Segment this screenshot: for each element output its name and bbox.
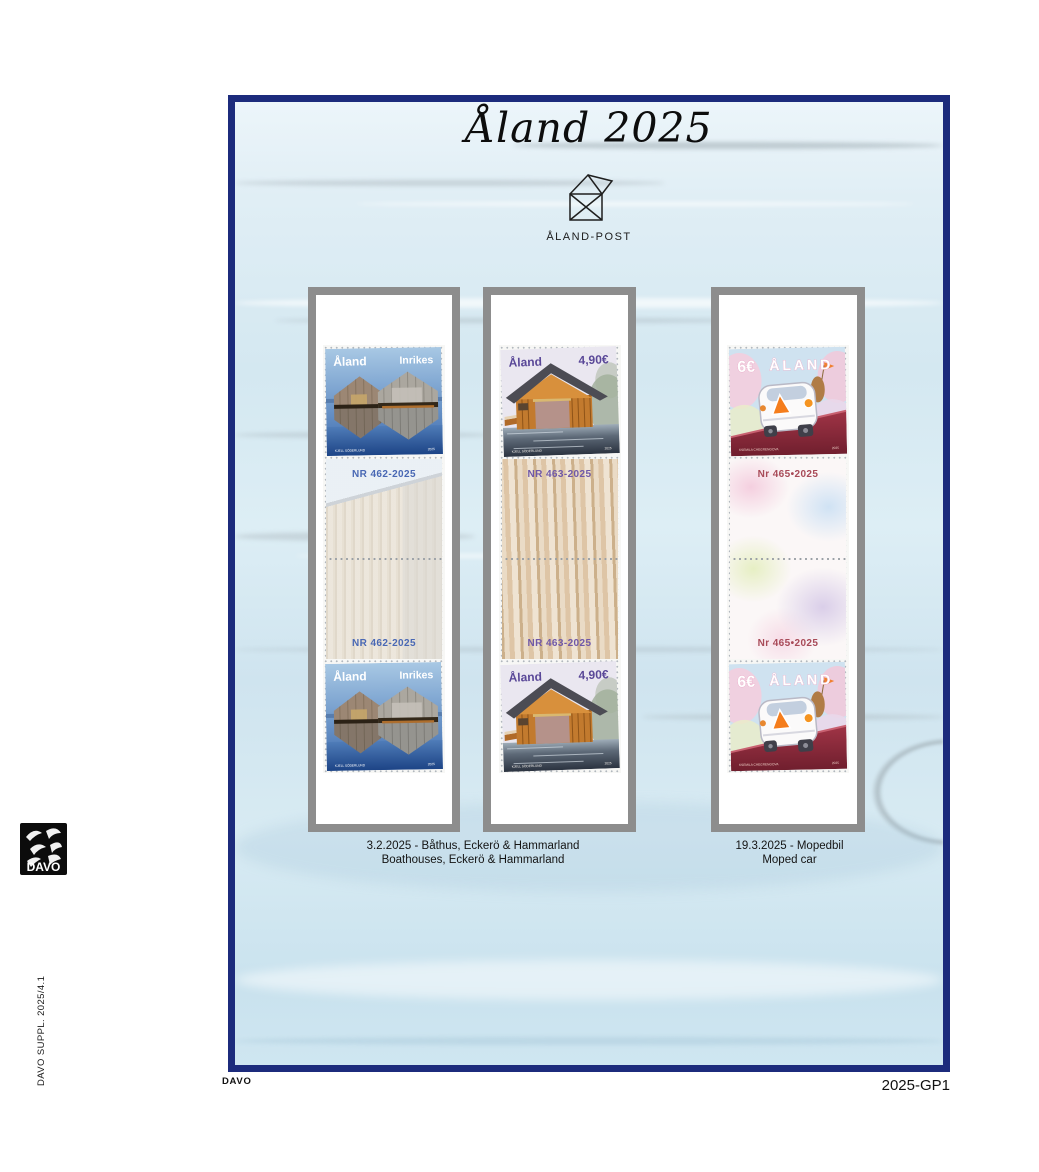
stamp-490-bottom: Åland 4,90€ KJELL SÖDERLUND 2025: [500, 661, 620, 772]
album-page: DAVO DAVO SUPPL. 2025/4.1 Åland 2025: [0, 0, 1039, 1172]
gutter-number-bottom: Nr 465•2025: [730, 638, 846, 649]
stamp-stack-465: 6€ ÅLAND KSEMILA CHEGRENGOVA 2025 Nr 465…: [727, 345, 849, 773]
caption-boathouses: 3.2.2025 - Båthus, Eckerö & Hammarland B…: [312, 839, 634, 867]
stamp-stack-462: Åland Inrikes KJELL SÖDERLUND 2025 NR 46…: [323, 345, 445, 773]
page-code: 2025-GP1: [830, 1077, 950, 1094]
stamp-year: 2025: [832, 446, 839, 450]
aland-post-wordmark: ÅLAND-POST: [228, 231, 950, 243]
aland-post-logo: ÅLAND-POST: [228, 168, 950, 243]
stamp-year: 2025: [604, 446, 611, 450]
caption-moped-car: 19.3.2025 - Mopedbil Moped car: [687, 839, 892, 867]
gutter-number-top: NR 463-2025: [502, 469, 618, 480]
stamp-strip-463: Åland 4,90€ KJELL SÖDERLUND 2025 NR 463-…: [483, 287, 636, 832]
stamp-strip-465: 6€ ÅLAND KSEMILA CHEGRENGOVA 2025 Nr 465…: [711, 287, 865, 832]
perforation-row: [502, 557, 618, 561]
stamp-inrikes-bottom: Åland Inrikes KJELL SÖDERLUND 2025: [325, 662, 443, 771]
stamp-490-top: Åland 4,90€ KJELL SÖDERLUND 2025: [500, 346, 620, 457]
gutter-number-bottom: NR 462-2025: [326, 638, 442, 649]
stamp-artist: KSEMILA CHEGRENGOVA: [739, 447, 779, 452]
stamp-denomination: 6€: [737, 674, 755, 691]
stamp-artist: KJELL SÖDERLUND: [335, 763, 366, 768]
stamp-year: 2025: [832, 761, 839, 765]
stamp-country: Åland: [333, 353, 367, 369]
stamp-strip-462: Åland Inrikes KJELL SÖDERLUND 2025 NR 46…: [308, 287, 460, 832]
spine-text: DAVO SUPPL. 2025/4.1: [36, 976, 47, 1086]
caption-line-swedish: 19.3.2025 - Mopedbil: [687, 839, 892, 853]
stamp-denomination: 4,90€: [578, 667, 609, 682]
stamp-mopedcar-top: 6€ ÅLAND KSEMILA CHEGRENGOVA 2025: [729, 347, 847, 456]
stamp-denomination: Inrikes: [399, 354, 433, 367]
stamp-inrikes-top: Åland Inrikes KJELL SÖDERLUND 2025: [325, 347, 443, 456]
aland-post-icon: [558, 168, 620, 226]
stamp-country: Åland: [508, 354, 542, 370]
gutter-number-bottom: NR 463-2025: [502, 638, 618, 649]
stamp-artist: KJELL SÖDERLUND: [335, 448, 366, 453]
stamp-year: 2025: [428, 762, 435, 766]
stamp-stack-463: Åland 4,90€ KJELL SÖDERLUND 2025 NR 463-…: [499, 345, 621, 773]
stamp-denomination: 6€: [737, 359, 755, 376]
caption-line-english: Boathouses, Eckerö & Hammarland: [312, 853, 634, 867]
gutter-463: NR 463-2025 NR 463-2025: [502, 459, 618, 659]
gutter-number-top: NR 462-2025: [326, 469, 442, 480]
stamp-year: 2025: [428, 447, 435, 451]
gutter-462: NR 462-2025 NR 462-2025: [326, 459, 442, 659]
gutter-number-top: Nr 465•2025: [730, 469, 846, 480]
caption-line-swedish: 3.2.2025 - Båthus, Eckerö & Hammarland: [312, 839, 634, 853]
gutter-465: Nr 465•2025 Nr 465•2025: [730, 459, 846, 659]
caption-line-english: Moped car: [687, 853, 892, 867]
stamp-denomination: Inrikes: [399, 669, 433, 682]
perforation-row: [326, 557, 442, 561]
page-title: Åland 2025: [228, 104, 950, 152]
davo-publisher-logo: DAVO: [20, 823, 67, 875]
stamp-country: Åland: [508, 669, 542, 685]
davo-logo-text: DAVO: [27, 860, 61, 874]
stamp-denomination: 4,90€: [578, 352, 609, 367]
stamp-country: ÅLAND: [769, 356, 833, 373]
footer-brand: DAVO: [222, 1076, 252, 1087]
stamp-country: Åland: [333, 668, 367, 684]
stamp-artist: KSEMILA CHEGRENGOVA: [739, 762, 779, 767]
stamp-year: 2025: [604, 761, 611, 765]
stamp-country: ÅLAND: [769, 671, 833, 688]
perforation-row: [730, 557, 846, 561]
stamp-mopedcar-bottom: 6€ ÅLAND KSEMILA CHEGRENGOVA 2025: [729, 662, 847, 771]
